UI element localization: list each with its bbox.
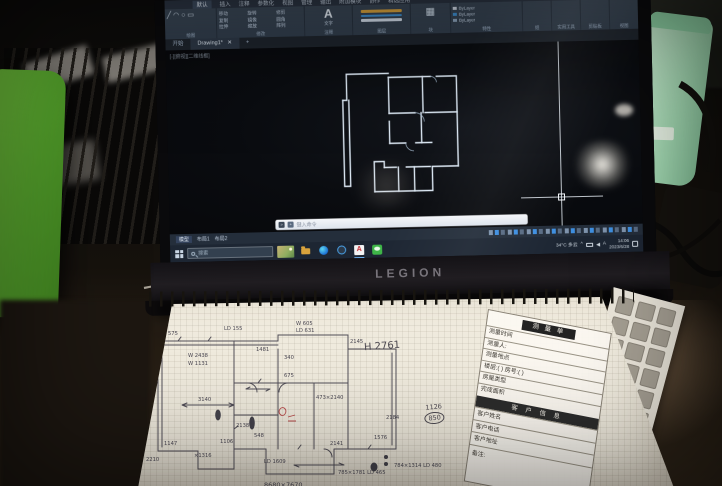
sketch-dim: 3140 [198,397,211,403]
ribbon-tab-annotate[interactable]: 注释 [239,0,250,7]
text-tool-label[interactable]: 文字 [324,21,333,26]
new-tab-icon[interactable]: + [239,37,256,48]
command-wrench-icon[interactable]: + [288,222,294,228]
start-file-tab[interactable]: 开始 [165,39,190,51]
tray-date: 2023/6/28 [609,243,629,248]
modify-panel: 移动 旋转 修剪 复制 镜像 圆角 拉伸 缩放 阵列 修改 [217,6,306,38]
tray-expand-icon[interactable]: ^ [581,242,583,247]
start-button[interactable] [175,250,183,258]
scale-tool[interactable]: 缩放 [248,23,274,30]
clipboard-panel-label[interactable]: 剪贴板 [581,23,609,30]
properties-panel: ByLayer ByLayer ByLayer 特性 [451,1,524,33]
handwritten-number-note: 1126 850 [423,402,445,425]
action-center-icon[interactable] [632,240,638,246]
drawing-file-tab-label: Drawing1* [197,40,223,47]
grid-paper-page: LD 155 575 W 2438 W 1131 2205 3140 675 4… [132,297,684,486]
sketch-dim: W 1131 [188,361,208,367]
command-prompt-text: 键入命令 [297,221,317,228]
groups-panel-label[interactable]: 组 [523,25,551,32]
laptop-screen: 默认 插入 注释 参数化 视图 管理 输出 附加模块 协作 精选应用 ╱ ◠ [154,0,656,263]
layer-list-icon[interactable] [355,5,408,26]
stretch-tool[interactable]: 拉伸 [219,24,245,31]
search-icon [191,251,195,255]
sketch-dim: 1147 [164,441,177,447]
edge-browser-icon[interactable] [316,243,330,257]
status-toggle-icons[interactable] [489,227,639,235]
draw-panel: ╱ ◠ ○ ▭ 绘图 [165,8,218,39]
autocad-window: 默认 插入 注释 参数化 视图 管理 输出 附加模块 协作 精选应用 ╱ ◠ [164,0,643,262]
text-icon[interactable]: A [307,6,350,21]
sketch-dim: 575 [168,331,178,337]
close-tab-icon[interactable]: ✕ [227,40,232,46]
ribbon-tab-output[interactable]: 输出 [320,0,331,5]
sketch-dim: ×1316 [194,453,212,459]
utilities-panel: 实用工具 [552,0,582,31]
layers-panel: 图层 [353,4,412,35]
green-bin [0,69,66,319]
sketch-dim: 1481 [256,347,269,353]
search-placeholder: 搜索 [198,250,208,257]
sketch-dim: 1106 [220,439,233,445]
ribbon-tab-default[interactable]: 默认 [192,0,211,8]
sketch-dim: 784×1314 LD 480 [394,463,442,469]
sketch-dim: 2184 [386,415,400,421]
sketch-overall-dim: 8680×7670 [264,481,303,486]
circle-icon[interactable]: ○ [181,12,185,19]
annotation-panel: A 文字 注释 [305,5,354,36]
ribbon-tab-insert[interactable]: 插入 [219,0,230,8]
sketch-dim: 1576 [374,435,387,441]
sketch-dim: W 605 [296,321,313,327]
arc-icon[interactable]: ◠ [173,12,179,19]
sketch-dim: 2205 [142,369,155,375]
sketch-dim: W 2438 [188,353,208,359]
lineweight-dropdown[interactable]: ByLayer [453,15,520,23]
view-panel-label[interactable]: 视图 [610,23,638,30]
model-tab[interactable]: 模型 [176,236,192,243]
system-tray: 34°C 多云 ^ A 14:06 2023/6/28 [556,238,638,250]
ribbon-tab-view[interactable]: 视图 [282,0,293,6]
sketch-dim: LD 631 [296,328,314,334]
annotation-panel-label[interactable]: 注释 [305,29,352,36]
block-panel: ▦ 块 [411,3,452,34]
screen-glare [570,140,635,189]
layout1-tab[interactable]: 布局1 [197,235,210,242]
utilities-panel-label[interactable]: 实用工具 [552,24,580,31]
draw-panel-label[interactable]: 绘图 [165,32,216,39]
screen-glare [615,104,633,116]
sketch-dim: 2138 [236,423,249,429]
sketch-dim: 548 [254,433,264,439]
clipboard-panel: 剪贴板 [581,0,611,30]
rectangle-icon[interactable]: ▭ [187,12,194,19]
legion-logo: LEGION [151,260,670,286]
input-method-indicator[interactable]: A [603,241,606,246]
line-icon[interactable]: ╱ [167,12,171,19]
ribbon-tab-parametric[interactable]: 参数化 [258,0,275,7]
sketch-dim: 2141 [330,441,343,447]
sketch-dim: 340 [284,355,294,361]
array-tool[interactable]: 阵列 [276,22,302,29]
ribbon-tab-manage[interactable]: 管理 [301,0,312,6]
weather-temp[interactable]: 34°C 多云 [556,241,578,248]
hand-drawn-floorplan: LD 155 575 W 2438 W 1131 2205 3140 675 4… [138,319,456,486]
app-icon-blue[interactable] [334,243,348,257]
sketch-dim: 2210 [146,457,159,463]
desk-shadow [0,300,150,486]
sketch-dim: LD 155 [224,326,242,332]
weather-widget[interactable] [277,245,294,257]
layout2-tab[interactable]: 布局2 [215,235,228,242]
layers-panel-label[interactable]: 图层 [353,28,410,35]
sketch-dim: 2145 [350,339,363,345]
sketch-dim: 675 [284,373,294,379]
taskbar-search[interactable]: 搜索 [187,246,273,259]
volume-icon[interactable] [596,242,600,246]
sketch-dim: 785×1781 LD 465 [338,470,386,476]
handwritten-circled-number: 850 [424,411,445,425]
sketch-dim: LD 1609 [264,459,286,465]
file-explorer-icon[interactable] [298,244,312,258]
command-options-icon[interactable]: > [279,222,285,228]
autocad-taskbar-icon[interactable]: A [352,242,366,256]
sketch-dim: 473×2140 [316,395,343,401]
groups-panel: 组 [523,1,553,32]
pickbox-cursor [558,193,565,200]
battery-icon[interactable] [586,242,593,246]
photo-scene: 默认 插入 注释 参数化 视图 管理 输出 附加模块 协作 精选应用 ╱ ◠ [0,0,722,486]
handwritten-number: 1126 [425,402,442,411]
wechat-icon[interactable] [370,242,384,256]
viewport-controls[interactable]: [-][俯视][二维线框] [170,52,210,60]
measurement-form: 测 量 单 测量时间 测量人: 测量地点 楼层:( ) 房号:( ) 房屋类型 … [464,309,612,486]
taskbar-clock[interactable]: 14:06 2023/6/28 [609,238,629,249]
drawing-canvas[interactable]: [-][俯视][二维线框] [166,40,643,235]
notebook: LD 155 575 W 2438 W 1131 2205 3140 675 4… [132,288,684,486]
view-panel: 视图 [610,0,639,29]
block-insert-icon[interactable]: ▦ [425,6,435,17]
block-panel-label[interactable]: 块 [411,27,450,34]
laptop: 默认 插入 注释 参数化 视图 管理 输出 附加模块 协作 精选应用 ╱ ◠ [154,0,657,317]
